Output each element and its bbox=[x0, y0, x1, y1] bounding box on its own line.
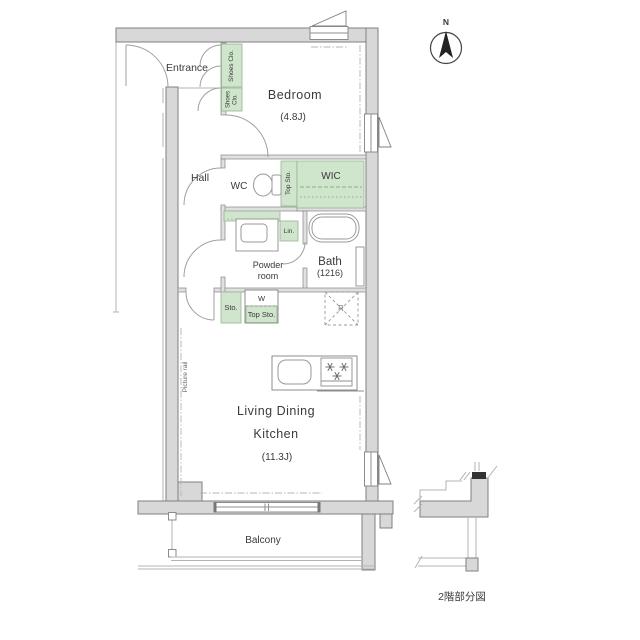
casement-window-icon bbox=[379, 117, 391, 147]
kitchen-counter-icon bbox=[272, 356, 357, 390]
ldk-label-line1: Living Dining bbox=[226, 403, 326, 419]
floor-plan: Entrance Shoes Clo. Shoes Clo. Bedroom (… bbox=[0, 0, 640, 640]
wic-label: WIC bbox=[315, 169, 347, 183]
ldk-label-line2: Kitchen bbox=[226, 426, 326, 442]
picture-rail-label: Picture rail bbox=[181, 352, 191, 402]
second-floor-detail-diagram bbox=[414, 462, 497, 571]
powder-room-label: Powder room bbox=[243, 258, 293, 284]
bedroom-size-label: (4.8J) bbox=[263, 110, 323, 124]
linen-label: Lin. bbox=[279, 225, 299, 237]
diagram-caption: 2階部分図 bbox=[417, 589, 507, 603]
washer-top-storage-label: Top Sto. bbox=[245, 308, 278, 321]
wc-label: WC bbox=[226, 179, 252, 193]
balcony-label: Balcony bbox=[228, 533, 298, 547]
casement-window-icon bbox=[379, 455, 391, 484]
casement-window-icon bbox=[312, 11, 346, 26]
toilet-icon bbox=[254, 174, 273, 196]
top-storage-label: Top Sto. bbox=[281, 171, 297, 195]
storage-label: Sto. bbox=[221, 301, 241, 314]
washer-label: W bbox=[247, 292, 276, 304]
boundary-lines bbox=[113, 30, 163, 501]
north-arrow-icon bbox=[431, 31, 462, 64]
hall-label: Hall bbox=[183, 171, 217, 185]
bath-size-label: (1216) bbox=[308, 267, 352, 279]
refrigerator-label: R bbox=[333, 302, 349, 314]
north-label: N bbox=[438, 16, 454, 28]
shoes-closet-upper-label: Shoes Clo. bbox=[222, 46, 242, 86]
entrance-label: Entrance bbox=[155, 61, 219, 75]
shoes-closet-lower-label: Shoes Clo. bbox=[223, 89, 240, 111]
bedroom-label: Bedroom bbox=[260, 87, 330, 103]
ldk-size-label: (11.3J) bbox=[227, 450, 327, 464]
